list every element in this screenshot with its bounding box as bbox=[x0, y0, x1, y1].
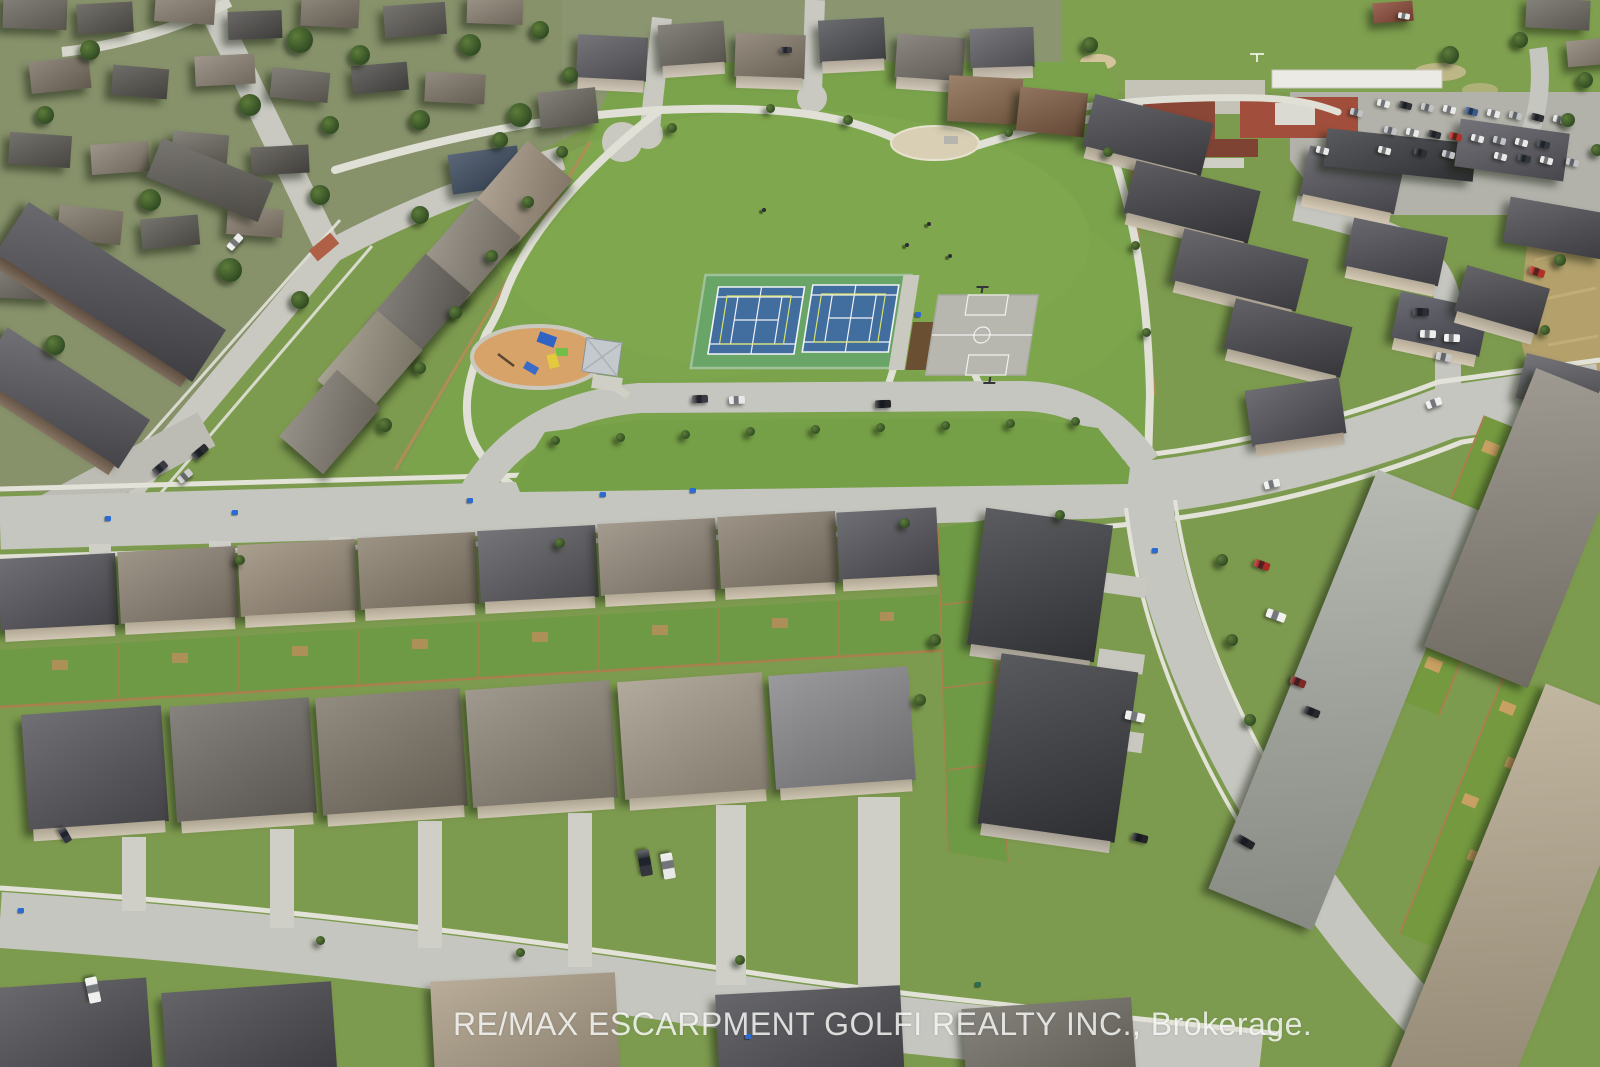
house bbox=[1525, 0, 1590, 31]
car bbox=[660, 852, 676, 880]
tree bbox=[556, 146, 568, 158]
house bbox=[978, 653, 1139, 843]
waste-bin bbox=[600, 492, 606, 497]
car bbox=[1420, 102, 1434, 112]
house bbox=[1566, 37, 1600, 68]
house-wall bbox=[822, 58, 885, 73]
waste-bin bbox=[690, 488, 696, 493]
house bbox=[947, 75, 1023, 125]
house bbox=[969, 27, 1034, 69]
car bbox=[1530, 112, 1544, 122]
house-wall bbox=[124, 617, 235, 635]
car bbox=[1253, 559, 1271, 572]
car bbox=[191, 443, 210, 461]
tree bbox=[1103, 147, 1113, 157]
tree bbox=[1006, 419, 1015, 428]
tree bbox=[766, 104, 775, 113]
tree bbox=[414, 362, 426, 374]
house-wall bbox=[980, 823, 1110, 853]
house bbox=[1344, 218, 1448, 287]
house bbox=[250, 145, 309, 176]
car bbox=[637, 849, 653, 877]
tree bbox=[235, 555, 245, 565]
house-wall bbox=[1344, 266, 1435, 297]
house-wall bbox=[724, 582, 835, 600]
tree bbox=[287, 27, 313, 53]
tree bbox=[735, 955, 745, 965]
house-wall bbox=[736, 76, 802, 90]
tree bbox=[811, 425, 820, 434]
house-wall bbox=[327, 805, 464, 826]
car bbox=[1349, 107, 1363, 117]
car bbox=[1486, 108, 1500, 118]
tree bbox=[1216, 554, 1228, 566]
house-wall bbox=[1255, 433, 1345, 457]
car bbox=[1508, 110, 1522, 120]
tree bbox=[1591, 144, 1600, 156]
car bbox=[1528, 266, 1546, 279]
house-wall bbox=[364, 603, 475, 621]
house bbox=[8, 132, 72, 168]
house bbox=[28, 56, 91, 94]
car bbox=[1427, 129, 1441, 139]
house bbox=[2, 0, 67, 30]
tree bbox=[80, 40, 100, 60]
house bbox=[90, 141, 150, 175]
tree bbox=[239, 94, 261, 116]
house-wall bbox=[843, 574, 937, 591]
tree bbox=[411, 206, 429, 224]
house bbox=[1208, 469, 1481, 930]
waste-bin bbox=[1152, 548, 1158, 553]
brokerage-watermark: RE/MAX ESCARPMENT GOLFI REALTY INC., Bro… bbox=[453, 1006, 1153, 1043]
house bbox=[1503, 197, 1600, 260]
house bbox=[836, 507, 939, 580]
house-wall bbox=[629, 789, 766, 810]
tree bbox=[1055, 510, 1065, 520]
house bbox=[465, 680, 618, 808]
car bbox=[1265, 607, 1287, 622]
tree bbox=[1512, 32, 1528, 48]
aerial-photo: RE/MAX ESCARPMENT GOLFI REALTY INC., Bro… bbox=[0, 0, 1600, 1067]
tree bbox=[492, 132, 508, 148]
person bbox=[762, 208, 766, 212]
tree bbox=[310, 185, 330, 205]
car bbox=[1263, 478, 1280, 490]
house-wall bbox=[0, 378, 115, 475]
tree bbox=[516, 948, 525, 957]
house bbox=[576, 34, 648, 82]
tree bbox=[291, 291, 309, 309]
car bbox=[151, 460, 168, 476]
house bbox=[140, 215, 200, 250]
house bbox=[351, 62, 409, 95]
tree bbox=[1004, 128, 1013, 137]
car bbox=[176, 468, 193, 484]
house bbox=[357, 532, 479, 610]
person bbox=[948, 254, 952, 258]
tree bbox=[522, 196, 534, 208]
house bbox=[76, 2, 133, 35]
waste-bin bbox=[975, 982, 981, 987]
tree bbox=[218, 258, 242, 282]
tree bbox=[508, 103, 532, 127]
house bbox=[467, 0, 524, 25]
car bbox=[1376, 98, 1390, 108]
house bbox=[315, 688, 468, 816]
house-wall bbox=[662, 62, 725, 78]
tree bbox=[876, 423, 885, 432]
tree bbox=[531, 21, 549, 39]
tree bbox=[139, 189, 161, 211]
tree bbox=[459, 34, 481, 56]
tree bbox=[1561, 113, 1575, 127]
house bbox=[537, 87, 598, 129]
house bbox=[111, 65, 169, 100]
tree bbox=[555, 538, 565, 548]
house-wall bbox=[1391, 338, 1476, 367]
house bbox=[169, 697, 317, 822]
tree bbox=[1131, 241, 1140, 250]
tree bbox=[45, 335, 65, 355]
car bbox=[1444, 334, 1460, 343]
car bbox=[780, 47, 792, 53]
tree bbox=[900, 518, 910, 528]
tree bbox=[316, 936, 325, 945]
tree bbox=[616, 433, 625, 442]
tree bbox=[321, 116, 339, 134]
tree bbox=[1577, 72, 1593, 88]
tree bbox=[350, 45, 370, 65]
car bbox=[1131, 832, 1148, 844]
tree bbox=[667, 123, 677, 133]
house bbox=[734, 33, 805, 79]
house bbox=[1372, 1, 1413, 24]
car bbox=[1565, 157, 1579, 167]
house bbox=[194, 53, 255, 86]
house bbox=[300, 0, 359, 28]
waste-bin bbox=[467, 498, 473, 503]
tree bbox=[1244, 714, 1256, 726]
car bbox=[1420, 330, 1436, 339]
tree bbox=[941, 421, 950, 430]
house-wall bbox=[181, 812, 313, 833]
tree bbox=[1071, 417, 1080, 426]
house-wall bbox=[477, 797, 614, 818]
tree bbox=[914, 694, 926, 706]
waste-bin bbox=[232, 510, 238, 515]
car bbox=[1413, 308, 1429, 317]
tree bbox=[843, 115, 853, 125]
house-wall bbox=[484, 596, 595, 614]
house bbox=[617, 672, 770, 800]
house bbox=[1385, 684, 1600, 1067]
house bbox=[768, 666, 916, 789]
car bbox=[1425, 397, 1443, 410]
house bbox=[967, 508, 1113, 662]
house-wall bbox=[604, 589, 715, 607]
house bbox=[0, 553, 119, 631]
tree bbox=[449, 306, 462, 319]
tree bbox=[929, 634, 941, 646]
house bbox=[21, 705, 169, 830]
tree bbox=[681, 430, 690, 439]
house bbox=[818, 17, 886, 62]
tree bbox=[1082, 37, 1098, 53]
car bbox=[1442, 104, 1456, 114]
house bbox=[477, 525, 599, 603]
tree bbox=[486, 250, 498, 262]
tree bbox=[378, 418, 392, 432]
house-wall bbox=[1300, 194, 1391, 225]
car bbox=[692, 395, 708, 404]
house bbox=[424, 71, 485, 104]
tree bbox=[1441, 46, 1459, 64]
car bbox=[226, 233, 244, 252]
house bbox=[1016, 87, 1088, 138]
tree bbox=[551, 436, 560, 445]
person bbox=[905, 243, 909, 247]
house-wall bbox=[4, 624, 115, 642]
house bbox=[161, 981, 338, 1067]
house bbox=[228, 10, 283, 40]
house bbox=[154, 0, 216, 25]
car bbox=[1405, 127, 1419, 137]
car bbox=[875, 400, 891, 409]
house bbox=[0, 977, 153, 1067]
car bbox=[1464, 106, 1478, 116]
house bbox=[597, 518, 719, 596]
tree bbox=[562, 67, 578, 83]
person bbox=[927, 222, 931, 226]
tree bbox=[36, 106, 54, 124]
house bbox=[1244, 378, 1346, 447]
house-wall bbox=[244, 610, 355, 628]
car bbox=[1398, 100, 1412, 110]
tree bbox=[1554, 254, 1566, 266]
house-wall bbox=[33, 820, 165, 841]
car bbox=[729, 396, 745, 405]
tree bbox=[410, 110, 430, 130]
house bbox=[383, 2, 447, 38]
waste-bin bbox=[105, 516, 111, 521]
buildings-and-objects bbox=[0, 0, 1600, 1067]
house bbox=[117, 546, 239, 624]
tree bbox=[746, 427, 755, 436]
tree bbox=[1226, 634, 1238, 646]
house bbox=[717, 511, 839, 589]
house bbox=[270, 67, 331, 103]
tree bbox=[1142, 328, 1151, 337]
house-wall bbox=[780, 779, 912, 800]
house bbox=[237, 539, 359, 617]
waste-bin bbox=[18, 908, 24, 913]
house bbox=[658, 21, 727, 68]
waste-bin bbox=[915, 312, 921, 317]
tree bbox=[1540, 325, 1550, 335]
